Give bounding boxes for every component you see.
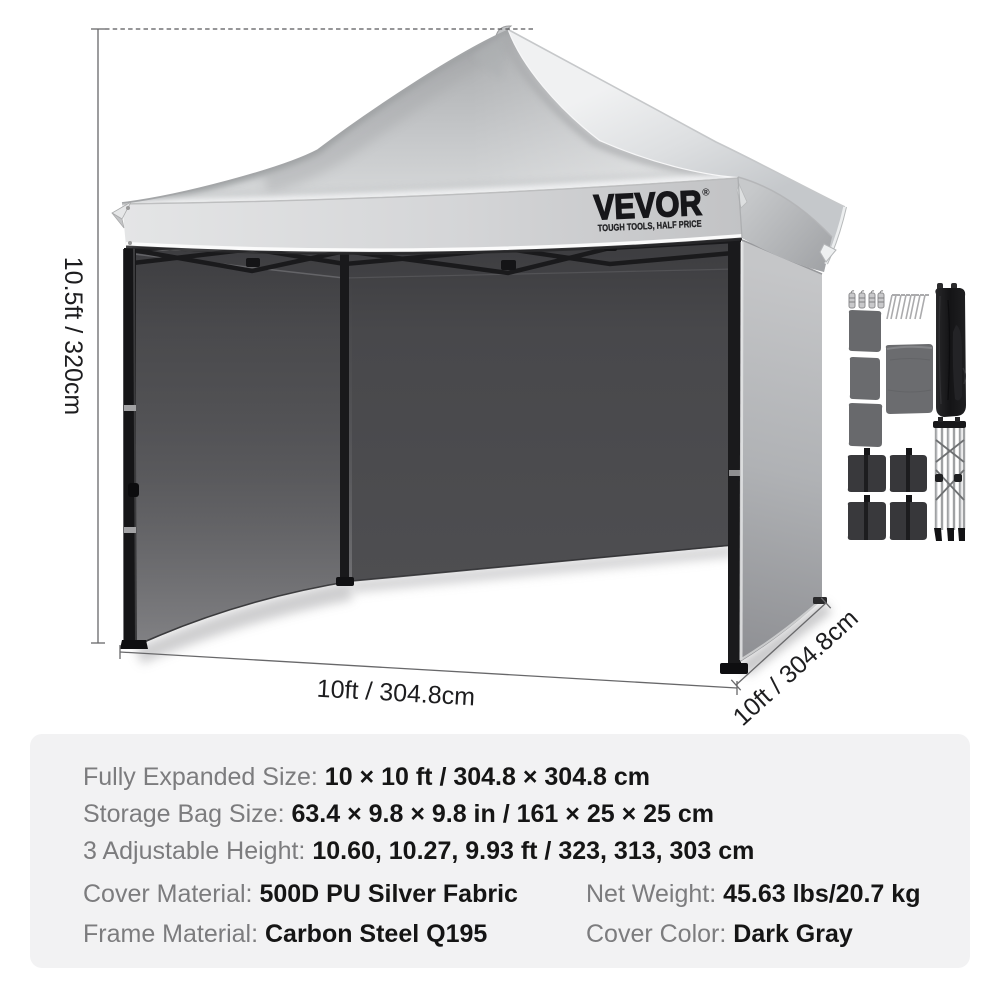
svg-text:Cover Material: 500D PU Silver: Cover Material: 500D PU Silver Fabric (83, 880, 518, 908)
svg-text:3 Adjustable Height: 10.60, 10: 3 Adjustable Height: 10.60, 10.27, 9.93 … (83, 837, 754, 865)
svg-text:Cover Color: Dark Gray: Cover Color: Dark Gray (586, 920, 853, 948)
svg-text:10.5ft / 320cm: 10.5ft / 320cm (59, 257, 87, 415)
svg-text:Storage Bag Size: 63.4 × 9.8 ×: Storage Bag Size: 63.4 × 9.8 × 9.8 in / … (83, 800, 714, 828)
svg-text:Fully Expanded Size: 10 × 10 f: Fully Expanded Size: 10 × 10 ft / 304.8 … (83, 763, 650, 791)
svg-text:®: ® (702, 187, 710, 198)
svg-text:Frame Material: Carbon Steel Q: Frame Material: Carbon Steel Q195 (83, 920, 487, 948)
svg-text:Net Weight: 45.63 lbs/20.7 kg: Net Weight: 45.63 lbs/20.7 kg (586, 880, 920, 908)
